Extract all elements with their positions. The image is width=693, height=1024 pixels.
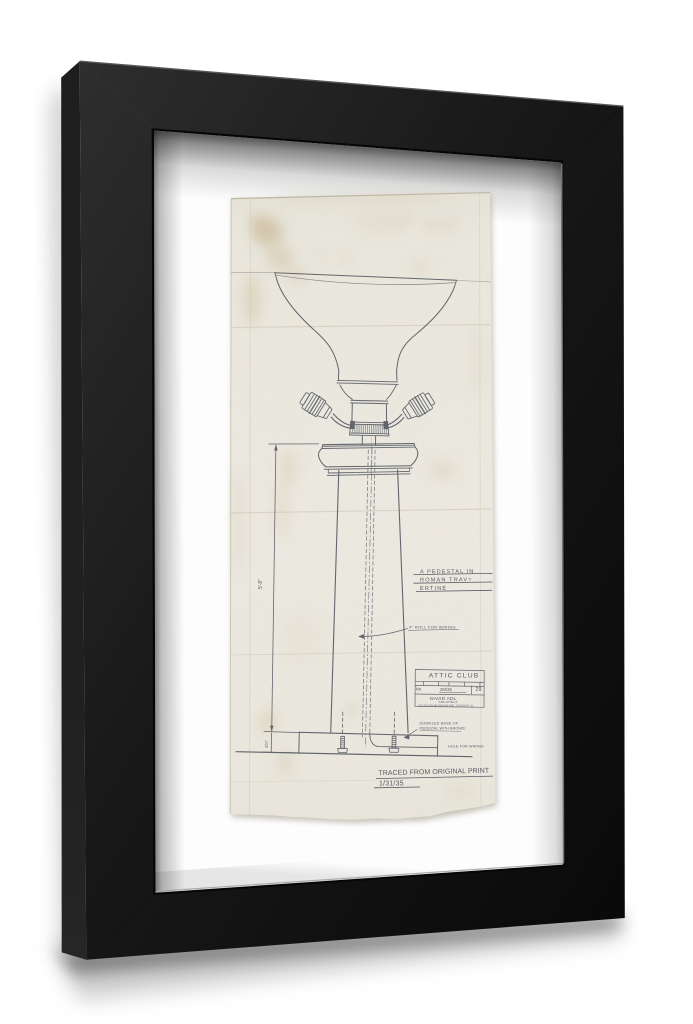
svg-text:ARCHITECT: ARCHITECT <box>439 700 458 704</box>
svg-text:No: No <box>416 687 422 692</box>
svg-text:1/31/35: 1/31/35 <box>379 780 404 787</box>
svg-text:160 SOUTH MICHIGAN AVE. CHICAG: 160 SOUTH MICHIGAN AVE. CHICAGO ILL <box>418 705 474 708</box>
svg-text:4" ROLL FOR WIRING: 4" ROLL FOR WIRING <box>409 625 456 630</box>
svg-text:HOLE FOR WIRING: HOLE FOR WIRING <box>448 744 484 748</box>
svg-text:2M/35: 2M/35 <box>440 687 453 692</box>
svg-text:ATTIC CLUB: ATTIC CLUB <box>429 673 480 680</box>
svg-text:PEDESTAL WITH BRONZE: PEDESTAL WITH BRONZE <box>420 726 467 730</box>
svg-text:DOWELED BASE OF: DOWELED BASE OF <box>420 721 459 725</box>
svg-text:5'-8": 5'-8" <box>258 579 264 589</box>
svg-text:3½": 3½" <box>263 740 269 748</box>
svg-text:29: 29 <box>476 687 482 693</box>
